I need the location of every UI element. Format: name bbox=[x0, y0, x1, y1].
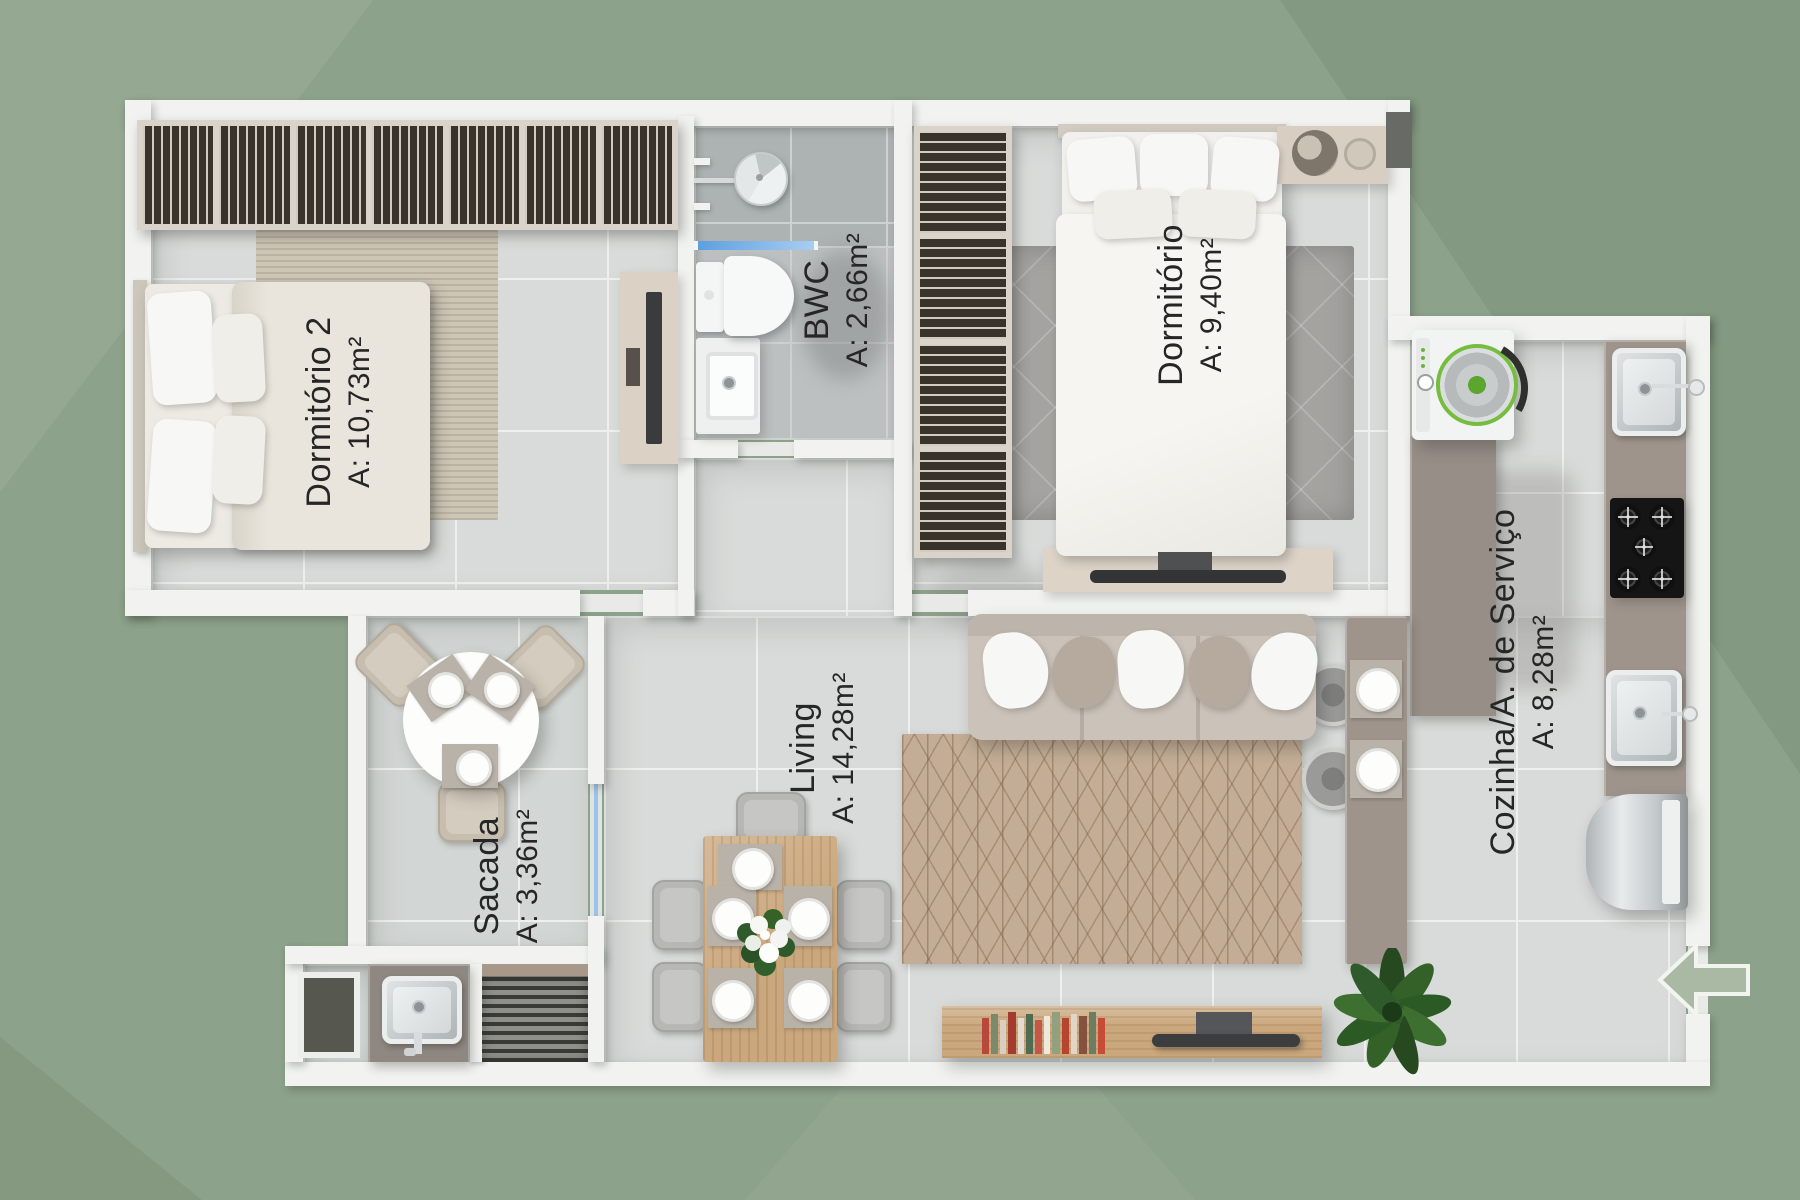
wall-mid-horizontal bbox=[968, 590, 1410, 616]
room-area: A: 14,28m² bbox=[825, 672, 863, 824]
rug-living bbox=[902, 734, 1302, 964]
sink-drain bbox=[1638, 382, 1652, 396]
tv-stand bbox=[1158, 552, 1212, 570]
book bbox=[1062, 1018, 1069, 1054]
dining-chair bbox=[652, 880, 708, 950]
wall-nook-top bbox=[285, 946, 603, 964]
plate bbox=[788, 898, 830, 940]
wardrobe-panel bbox=[143, 126, 213, 224]
book bbox=[1018, 1018, 1024, 1054]
faucet-arm bbox=[1652, 384, 1692, 388]
wardrobe-panel bbox=[449, 126, 519, 224]
plate bbox=[788, 980, 830, 1022]
dining-chair bbox=[836, 962, 892, 1032]
wall-balcony-living bbox=[588, 616, 604, 784]
room-label-living: Living A: 14,28m² bbox=[782, 672, 862, 824]
decor-vase bbox=[1344, 138, 1376, 170]
dining-chair bbox=[652, 962, 708, 1032]
wall-kitchen-right bbox=[1686, 316, 1710, 946]
room-name: Living bbox=[782, 672, 825, 824]
room-label-cozinha: Cozinha/A. de Serviço A: 8,28m² bbox=[1482, 509, 1562, 856]
wall-bedroom-kitchen bbox=[1388, 100, 1410, 616]
wardrobe-panel bbox=[602, 126, 672, 224]
book bbox=[1035, 1020, 1042, 1054]
toilet-button bbox=[704, 290, 714, 300]
wall-balcony-living bbox=[588, 916, 604, 1062]
door-threshold-bwc bbox=[738, 442, 794, 456]
tv-dormitorio bbox=[1090, 570, 1286, 583]
plate bbox=[712, 898, 754, 940]
wall-mid-horizontal bbox=[125, 590, 580, 616]
floor-bwc-shower bbox=[694, 126, 894, 246]
room-name: BWC bbox=[796, 233, 839, 368]
shower-head-center bbox=[756, 174, 763, 181]
room-label-sacada: Sacada A: 3,36m² bbox=[466, 809, 546, 944]
room-name: Dormitório 2 bbox=[298, 316, 341, 507]
flower-centerpiece bbox=[760, 930, 770, 940]
book bbox=[1000, 1020, 1006, 1054]
stove-burner bbox=[1632, 535, 1656, 559]
wall-outer-bottom bbox=[285, 1062, 1710, 1086]
room-name: Cozinha/A. de Serviço bbox=[1482, 509, 1525, 856]
door-threshold-dormitorio bbox=[912, 594, 968, 612]
book bbox=[1008, 1012, 1016, 1054]
stove-burner bbox=[1649, 504, 1675, 530]
wardrobe-dormitorio bbox=[914, 126, 1012, 558]
washer-led bbox=[1421, 348, 1425, 352]
dining-chair bbox=[836, 880, 892, 950]
wardrobe-panel bbox=[920, 345, 1006, 446]
book bbox=[1044, 1016, 1050, 1054]
book bbox=[1052, 1012, 1060, 1054]
book-row bbox=[982, 1012, 1152, 1054]
wall-dorm2-bwc bbox=[678, 116, 694, 616]
room-area: A: 8,28m² bbox=[1525, 509, 1563, 856]
faucet-knob bbox=[1682, 706, 1698, 722]
floor-plan-scene: Dormitório 2 A: 10,73m² BWC A: 2,66m² Do… bbox=[0, 0, 1800, 1200]
wall-bwc-bottom bbox=[794, 440, 910, 458]
floor-hall bbox=[694, 458, 894, 616]
wall-bwc-dormitorio bbox=[894, 100, 912, 616]
table-lamp bbox=[1292, 130, 1338, 176]
plate bbox=[456, 750, 492, 786]
barbecue-grill bbox=[482, 964, 588, 1062]
book bbox=[1098, 1018, 1105, 1054]
wardrobe-panel bbox=[525, 126, 595, 224]
wardrobe-panel bbox=[920, 132, 1006, 233]
refrigerator-door-edge bbox=[1662, 800, 1680, 904]
wardrobe-dormitorio2 bbox=[137, 120, 678, 230]
wardrobe-panel bbox=[920, 239, 1006, 340]
pillow bbox=[1140, 134, 1208, 196]
plate bbox=[484, 672, 520, 708]
plate bbox=[1356, 748, 1400, 792]
tv-media-box bbox=[626, 348, 640, 386]
room-area: A: 2,66m² bbox=[839, 233, 877, 368]
stove-burner bbox=[1615, 504, 1641, 530]
sink-drain bbox=[722, 376, 736, 390]
stove-burner bbox=[1615, 566, 1641, 592]
plate bbox=[428, 672, 464, 708]
door-threshold-dormitorio2 bbox=[580, 594, 643, 612]
wardrobe-panel bbox=[372, 126, 442, 224]
tv-living bbox=[1152, 1034, 1300, 1047]
faucet-knob bbox=[404, 1048, 416, 1056]
faucet-knob bbox=[1688, 379, 1705, 396]
pillow bbox=[212, 415, 267, 505]
book bbox=[1071, 1014, 1077, 1054]
stove-burner bbox=[1649, 566, 1675, 592]
tv-stand-living bbox=[1196, 1012, 1252, 1036]
door-threshold-balcony bbox=[590, 784, 602, 916]
pillow bbox=[146, 418, 218, 534]
book bbox=[1026, 1014, 1033, 1054]
wardrobe-panel bbox=[920, 452, 1006, 553]
room-area: A: 10,73m² bbox=[341, 316, 379, 507]
shaft-column bbox=[1386, 112, 1412, 168]
plant bbox=[1326, 948, 1458, 1078]
book bbox=[1089, 1012, 1096, 1054]
book bbox=[991, 1014, 998, 1054]
sink-drain bbox=[412, 1000, 426, 1014]
entrance-arrow-icon bbox=[1656, 938, 1752, 1022]
book bbox=[1079, 1016, 1087, 1054]
room-label-dormitorio2: Dormitório 2 A: 10,73m² bbox=[298, 316, 378, 507]
room-name: Dormitório bbox=[1150, 224, 1193, 386]
room-area: A: 3,36m² bbox=[509, 809, 547, 944]
plate bbox=[732, 848, 774, 890]
nook-window bbox=[298, 972, 360, 1058]
wall-shower-stub bbox=[694, 203, 710, 210]
room-label-dormitorio: Dormitório A: 9,40m² bbox=[1150, 224, 1230, 386]
book bbox=[982, 1018, 989, 1054]
wall-shower-stub bbox=[694, 158, 710, 165]
plate bbox=[1356, 668, 1400, 712]
room-name: Sacada bbox=[466, 809, 509, 944]
wardrobe-panel bbox=[296, 126, 366, 224]
plate bbox=[712, 980, 754, 1022]
room-area: A: 9,40m² bbox=[1193, 224, 1231, 386]
washing-machine bbox=[1412, 330, 1514, 440]
tv-dormitorio2 bbox=[646, 292, 662, 444]
pillow bbox=[212, 313, 267, 403]
room-label-bwc: BWC A: 2,66m² bbox=[796, 233, 876, 368]
wall-bwc-bottom bbox=[678, 440, 738, 458]
sink-drain bbox=[1633, 706, 1647, 720]
wardrobe-panel bbox=[219, 126, 289, 224]
pillow bbox=[146, 290, 218, 406]
